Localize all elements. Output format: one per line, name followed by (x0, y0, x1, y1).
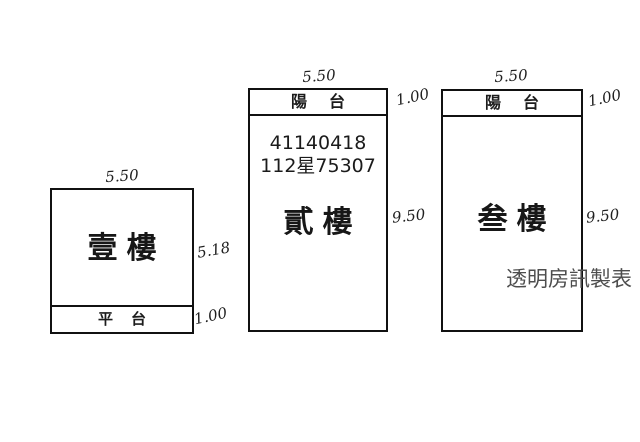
first-floor-width-dim: 5.50 (86, 167, 159, 187)
third-floor-balcony-strip: 陽台 (443, 91, 581, 117)
third-floor-balcony-label: 陽台 (463, 95, 561, 111)
watermark-text: 透明房訊製表 (506, 267, 632, 292)
second-floor-outline: 陽台 41140418 112星75307 貳樓 (248, 88, 388, 332)
first-floor-height-dim: 5.18 (196, 240, 232, 261)
platform-label: 平台 (80, 312, 164, 327)
registration-number-line1: 41140418 (250, 132, 386, 155)
platform-strip: 平台 (52, 305, 192, 332)
third-floor-outline: 陽台 叁樓 (441, 89, 583, 332)
first-floor-label: 壹樓 (52, 232, 192, 267)
third-floor-label: 叁樓 (443, 203, 581, 238)
second-floor-label: 貳樓 (250, 206, 386, 241)
second-floor-balcony-dim: 1.00 (395, 87, 431, 109)
third-floor-height-dim: 9.50 (585, 207, 620, 225)
second-floor-height-dim: 9.50 (391, 207, 426, 225)
platform-height-dim: 1.00 (193, 306, 229, 328)
third-floor-width-dim: 5.50 (480, 67, 543, 86)
second-floor-balcony-strip: 陽台 (250, 90, 386, 116)
second-floor-width-dim: 5.50 (288, 67, 351, 86)
third-floor-balcony-dim: 1.00 (587, 88, 623, 110)
first-floor-outline: 壹樓 平台 (50, 188, 194, 334)
registration-numbers: 41140418 112星75307 (250, 132, 386, 178)
registration-number-line2: 112星75307 (250, 155, 386, 178)
floor-plan: 5.50 壹樓 平台 5.18 1.00 5.50 陽台 41140418 11… (0, 0, 640, 442)
second-floor-balcony-label: 陽台 (269, 94, 367, 110)
